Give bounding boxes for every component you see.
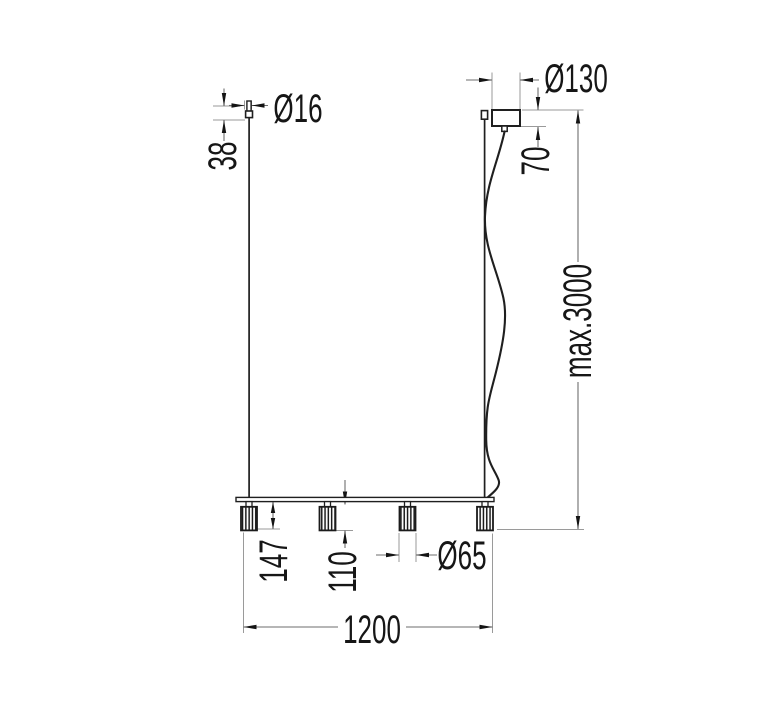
lamp-structure (236, 101, 520, 507)
drawing-canvas (0, 0, 774, 705)
spotlights (241, 507, 493, 531)
spotlight-4 (477, 507, 493, 531)
suspension-cap (246, 111, 253, 118)
dimension-drawing: Ø16 38 Ø130 70 max.3000 147 110 Ø65 1200 (0, 0, 774, 705)
spotlight-2 (320, 507, 336, 531)
ceiling-canopy (492, 110, 520, 126)
spotlight-1 (241, 507, 257, 531)
extension-lines (213, 73, 584, 634)
fixture-bar (236, 497, 494, 501)
power-cord (485, 131, 505, 497)
spotlight-3 (400, 507, 416, 531)
suspension-nipple (247, 101, 251, 112)
cable-grip (481, 111, 487, 120)
dimension-arrows (222, 78, 580, 629)
dimension-lines (224, 80, 578, 627)
